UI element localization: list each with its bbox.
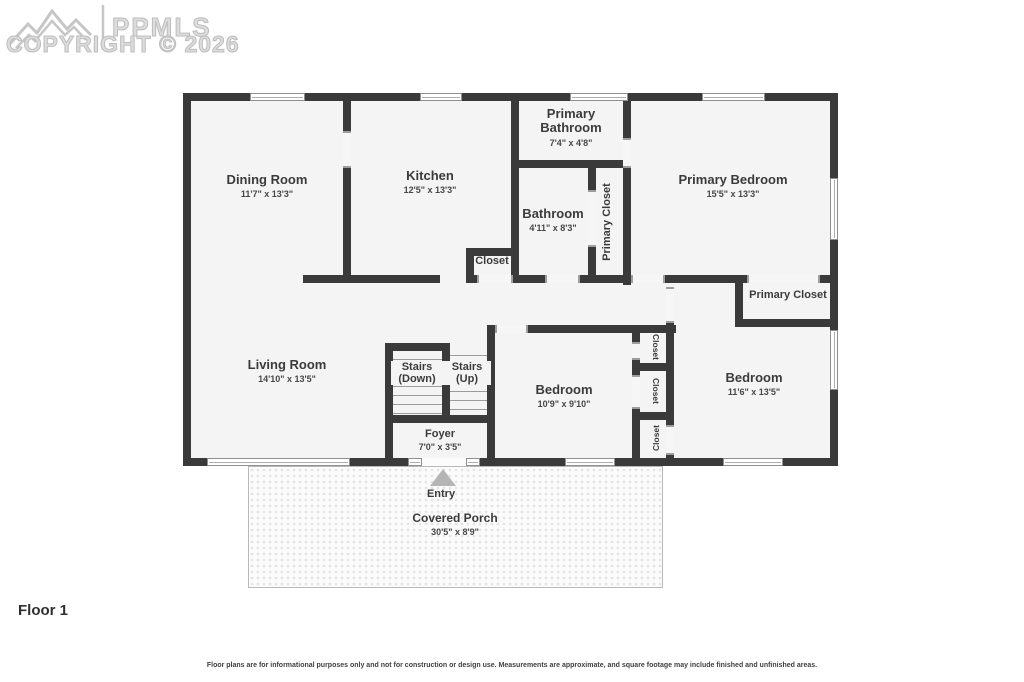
door-opening bbox=[666, 287, 674, 323]
wall-segment bbox=[623, 168, 631, 285]
entry-door-opening bbox=[422, 458, 466, 466]
wall-segment bbox=[588, 160, 596, 190]
door-opening bbox=[666, 425, 674, 455]
room-name: Bathroom bbox=[522, 207, 583, 221]
room-name: Living Room bbox=[248, 358, 327, 372]
door-opening bbox=[495, 325, 528, 333]
room-dims: 7'4" x 4'8" bbox=[531, 138, 611, 148]
room-name: Stairs (Down) bbox=[391, 361, 443, 385]
room-name: Primary Closet bbox=[749, 289, 827, 301]
room-label-kitchen-closet: Closet bbox=[475, 255, 509, 267]
copyright-watermark: COPYRIGHT © 2026 bbox=[6, 31, 240, 58]
window bbox=[702, 93, 765, 101]
room-dims: 14'10" x 13'5" bbox=[248, 374, 327, 384]
wall-segment bbox=[303, 275, 440, 283]
door-opening bbox=[632, 342, 640, 360]
wall-segment bbox=[632, 409, 640, 458]
entry-label: Entry bbox=[427, 488, 455, 500]
wall-segment bbox=[343, 93, 351, 131]
room-name: Primary Bedroom bbox=[678, 173, 787, 187]
wall-segment bbox=[588, 247, 596, 283]
window bbox=[250, 93, 305, 101]
room-label-living: Living Room 14'10" x 13'5" bbox=[248, 358, 327, 384]
room-name: Stairs (Up) bbox=[443, 361, 491, 385]
wall-segment bbox=[632, 333, 640, 342]
window bbox=[565, 458, 615, 466]
wall-segment bbox=[385, 343, 450, 351]
room-label-closet-2: Closet bbox=[651, 378, 661, 404]
room-dims: 10'9" x 9'10" bbox=[535, 399, 592, 409]
door-opening bbox=[631, 275, 665, 283]
window bbox=[723, 458, 783, 466]
room-name: Bedroom bbox=[725, 371, 782, 385]
room-name: Kitchen bbox=[404, 169, 457, 183]
window bbox=[408, 458, 422, 466]
wall-segment bbox=[513, 275, 545, 283]
room-label-closet-3: Closet bbox=[651, 425, 661, 451]
room-label-primary-bedroom: Primary Bedroom 15'5" x 13'3" bbox=[678, 173, 787, 199]
room-name: Primary Bathroom bbox=[531, 107, 611, 136]
room-label-stairs-up: Stairs (Up) bbox=[443, 361, 491, 385]
room-name: Entry bbox=[427, 488, 455, 500]
entry-arrow-icon bbox=[430, 469, 456, 486]
room-label-primary-closet-tall: Primary Closet bbox=[601, 183, 613, 261]
door-opening bbox=[623, 138, 631, 168]
door-opening bbox=[632, 375, 640, 409]
wall-segment bbox=[466, 275, 477, 283]
disclaimer-text: Floor plans are for informational purpos… bbox=[0, 662, 1024, 669]
room-label-closet-1: Closet bbox=[651, 334, 661, 360]
door-opening bbox=[477, 275, 513, 283]
room-label-bedroom-mid: Bedroom 10'9" x 9'10" bbox=[535, 383, 592, 409]
door-opening bbox=[747, 275, 820, 283]
window bbox=[207, 458, 350, 466]
window bbox=[420, 93, 462, 101]
wall-segment bbox=[820, 275, 838, 283]
room-dims: 7'0" x 3'5" bbox=[419, 442, 462, 452]
room-label-stairs-down: Stairs (Down) bbox=[391, 361, 443, 385]
room-dims: 12'5" x 13'3" bbox=[404, 185, 457, 195]
room-name: Dining Room bbox=[227, 173, 308, 187]
window bbox=[570, 93, 628, 101]
room-dims: 11'7" x 13'3" bbox=[227, 189, 308, 199]
wall-segment bbox=[528, 325, 676, 333]
wall-segment bbox=[511, 160, 631, 168]
room-dims: 4'11" x 8'3" bbox=[522, 223, 583, 233]
room-dims: 15'5" x 13'3" bbox=[678, 189, 787, 199]
wall-segment bbox=[735, 319, 838, 327]
room-name: Bedroom bbox=[535, 383, 592, 397]
wall-segment bbox=[487, 325, 495, 466]
room-name: Foyer bbox=[419, 428, 462, 440]
wall-segment bbox=[183, 93, 191, 466]
door-opening bbox=[343, 131, 351, 168]
room-label-dining: Dining Room 11'7" x 13'3" bbox=[227, 173, 308, 199]
wall-segment bbox=[666, 323, 674, 425]
wall-segment bbox=[343, 168, 351, 281]
floor-title: Floor 1 bbox=[18, 602, 68, 619]
room-dims: 30'5" x 8'9" bbox=[412, 527, 497, 537]
room-label-foyer: Foyer 7'0" x 3'5" bbox=[419, 428, 462, 452]
door-opening bbox=[545, 275, 580, 283]
room-name: Covered Porch bbox=[412, 512, 497, 525]
room-name: Closet bbox=[475, 255, 509, 267]
door-opening bbox=[588, 190, 596, 247]
wall-segment bbox=[665, 275, 747, 283]
room-label-bedroom-right: Bedroom 11'6" x 13'5" bbox=[725, 371, 782, 397]
wall-segment bbox=[666, 455, 674, 466]
room-label-primary-bathroom: Primary Bathroom 7'4" x 4'8" bbox=[531, 107, 611, 148]
floor-plan-page: PPMLS COPYRIGHT © 2026 bbox=[0, 0, 1024, 682]
window bbox=[466, 458, 480, 466]
room-label-kitchen: Kitchen 12'5" x 13'3" bbox=[404, 169, 457, 195]
window bbox=[830, 178, 838, 240]
window bbox=[830, 330, 838, 390]
wall-segment bbox=[385, 415, 495, 423]
wall-segment bbox=[632, 360, 640, 375]
room-label-primary-closet-room: Primary Closet bbox=[749, 289, 827, 301]
room-label-bathroom: Bathroom 4'11" x 8'3" bbox=[522, 207, 583, 233]
room-label-covered-porch: Covered Porch 30'5" x 8'9" bbox=[412, 512, 497, 537]
room-dims: 11'6" x 13'5" bbox=[725, 387, 782, 397]
